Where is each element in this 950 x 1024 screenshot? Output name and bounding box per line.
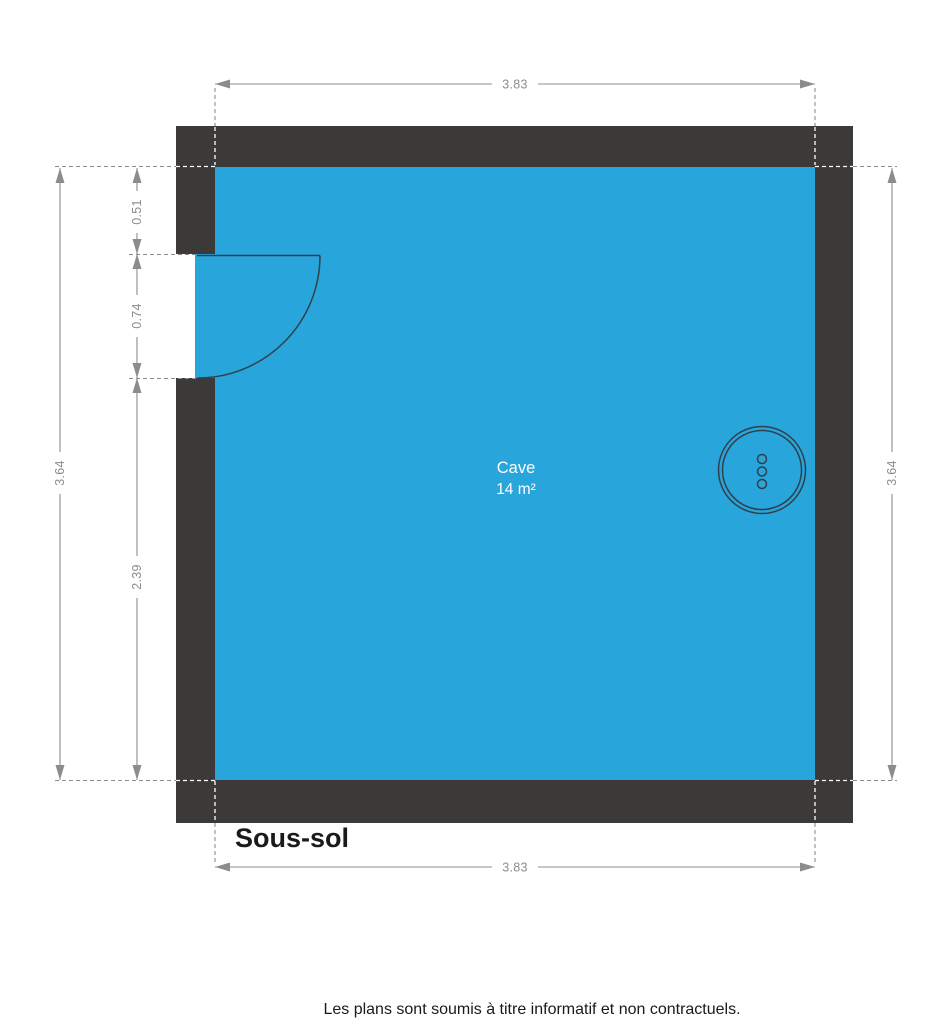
- dim-top-label: 3.83: [502, 78, 528, 92]
- dim-segment-upper-label: 0.51: [130, 199, 144, 225]
- floorplan-page: Cave 14 m² 3.83 3.83 3.64: [0, 0, 950, 1024]
- disclaimer-text: Les plans sont soumis à titre informatif…: [323, 1001, 740, 1018]
- floorplan-canvas: Cave 14 m² 3.83 3.83 3.64: [0, 0, 950, 1024]
- room-area-label: 14 m²: [496, 481, 536, 498]
- dim-left-total-label: 3.64: [53, 460, 67, 486]
- door-threshold: [195, 254, 215, 378]
- dim-bottom-label: 3.83: [502, 861, 528, 875]
- floor-title: Sous-sol: [235, 823, 349, 853]
- dim-segment-lower-label: 2.39: [130, 564, 144, 590]
- dim-right-total-label: 3.64: [885, 460, 899, 486]
- room-name-label: Cave: [497, 459, 536, 477]
- dim-segment-door-label: 0.74: [130, 303, 144, 329]
